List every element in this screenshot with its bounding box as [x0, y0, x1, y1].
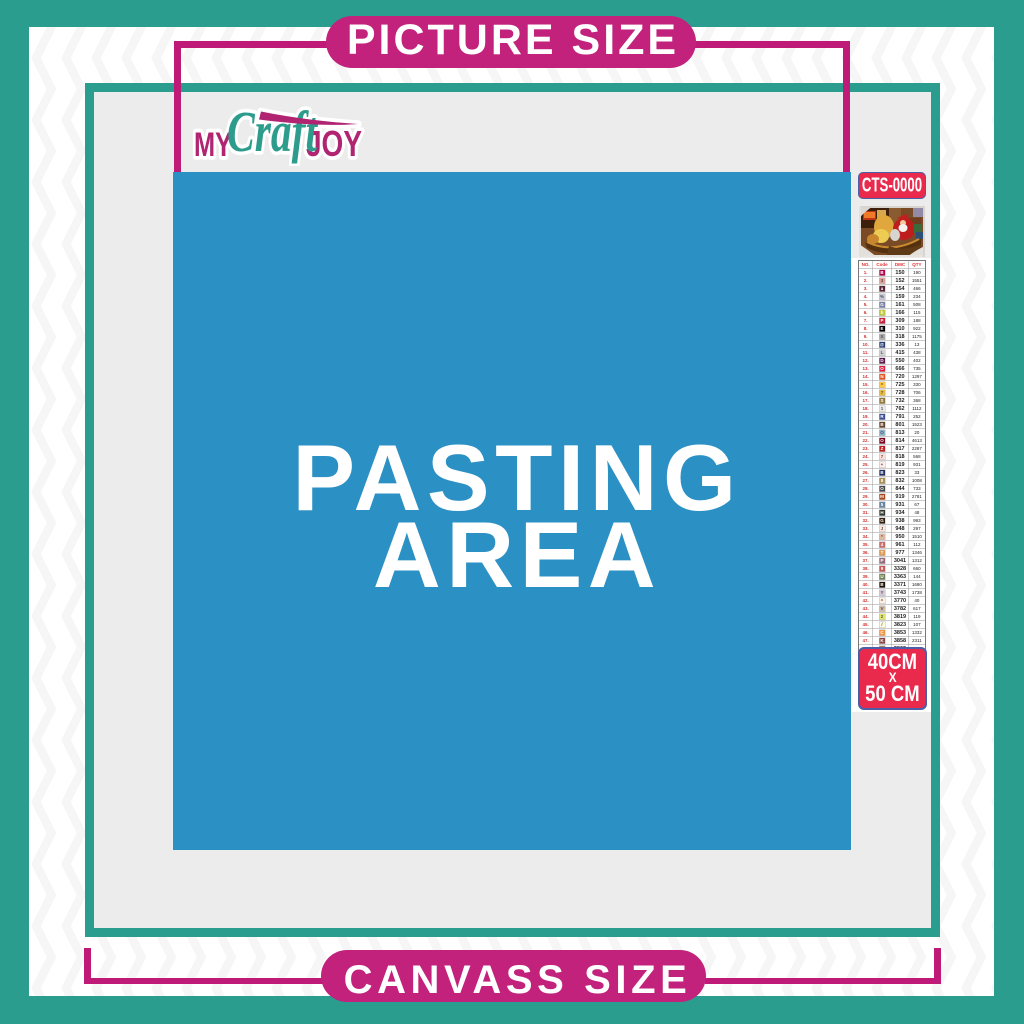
- svg-text:Craft: Craft: [227, 99, 318, 164]
